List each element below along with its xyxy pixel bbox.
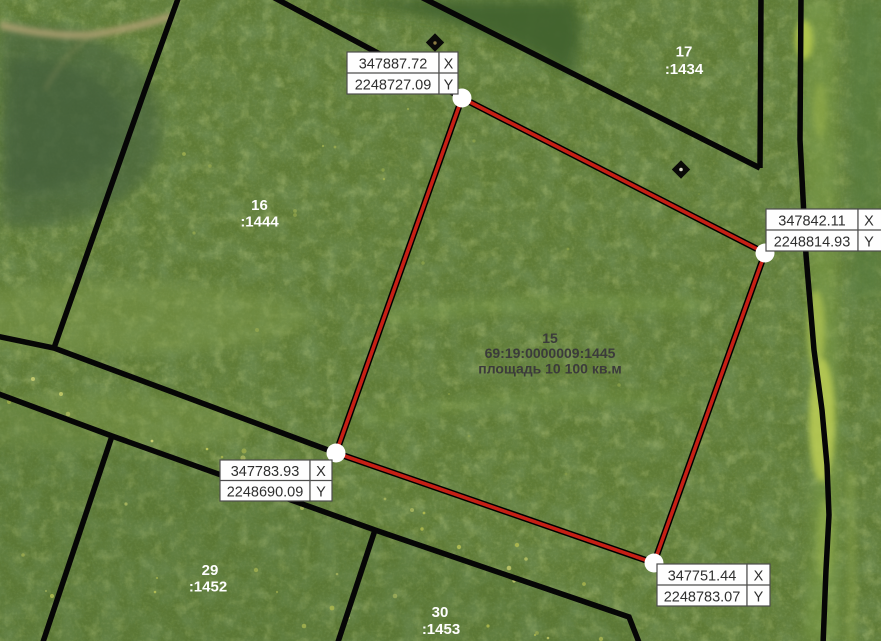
svg-text:69:19:0000009:1445: 69:19:0000009:1445	[485, 345, 616, 361]
svg-text:2248783.07: 2248783.07	[664, 590, 741, 606]
svg-text:347783.93: 347783.93	[231, 464, 300, 480]
svg-text:X: X	[754, 569, 764, 585]
svg-text:Y: Y	[864, 235, 874, 251]
svg-text:2248814.93: 2248814.93	[774, 235, 851, 251]
svg-text::1452: :1452	[189, 579, 227, 596]
svg-text:29: 29	[202, 562, 219, 579]
svg-text:Y: Y	[754, 590, 764, 606]
svg-text:17: 17	[676, 44, 693, 61]
svg-text:16: 16	[251, 197, 268, 214]
svg-text::1444: :1444	[240, 214, 279, 231]
svg-text:X: X	[316, 464, 326, 480]
svg-text::1434: :1434	[665, 61, 704, 78]
svg-text:347751.44: 347751.44	[668, 569, 737, 585]
svg-text:Y: Y	[316, 485, 326, 501]
svg-text::1453: :1453	[422, 621, 460, 638]
svg-text:2248727.09: 2248727.09	[355, 78, 432, 94]
svg-text:X: X	[444, 57, 454, 73]
svg-text:2248690.09: 2248690.09	[227, 485, 304, 501]
svg-text:площадь 10 100 кв.м: площадь 10 100 кв.м	[478, 361, 621, 377]
svg-text:30: 30	[432, 604, 449, 621]
svg-text:Y: Y	[444, 78, 454, 94]
svg-text:347887.72: 347887.72	[359, 57, 428, 73]
svg-text:X: X	[864, 214, 874, 230]
svg-text:15: 15	[542, 330, 558, 346]
svg-text:347842.11: 347842.11	[778, 214, 845, 230]
